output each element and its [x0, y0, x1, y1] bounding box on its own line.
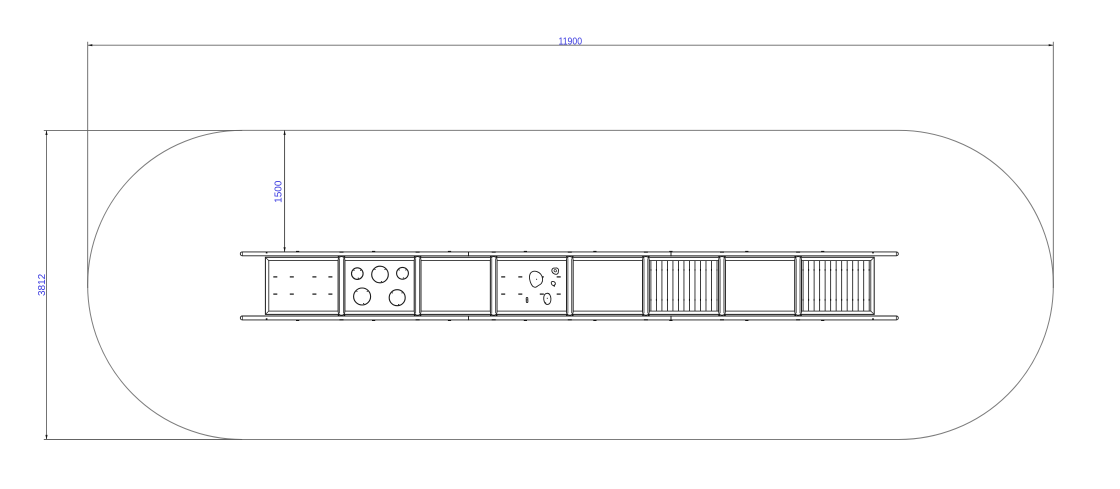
svg-text:3812: 3812	[37, 273, 48, 296]
svg-text:11900: 11900	[559, 35, 583, 47]
svg-text:1500: 1500	[273, 180, 284, 203]
